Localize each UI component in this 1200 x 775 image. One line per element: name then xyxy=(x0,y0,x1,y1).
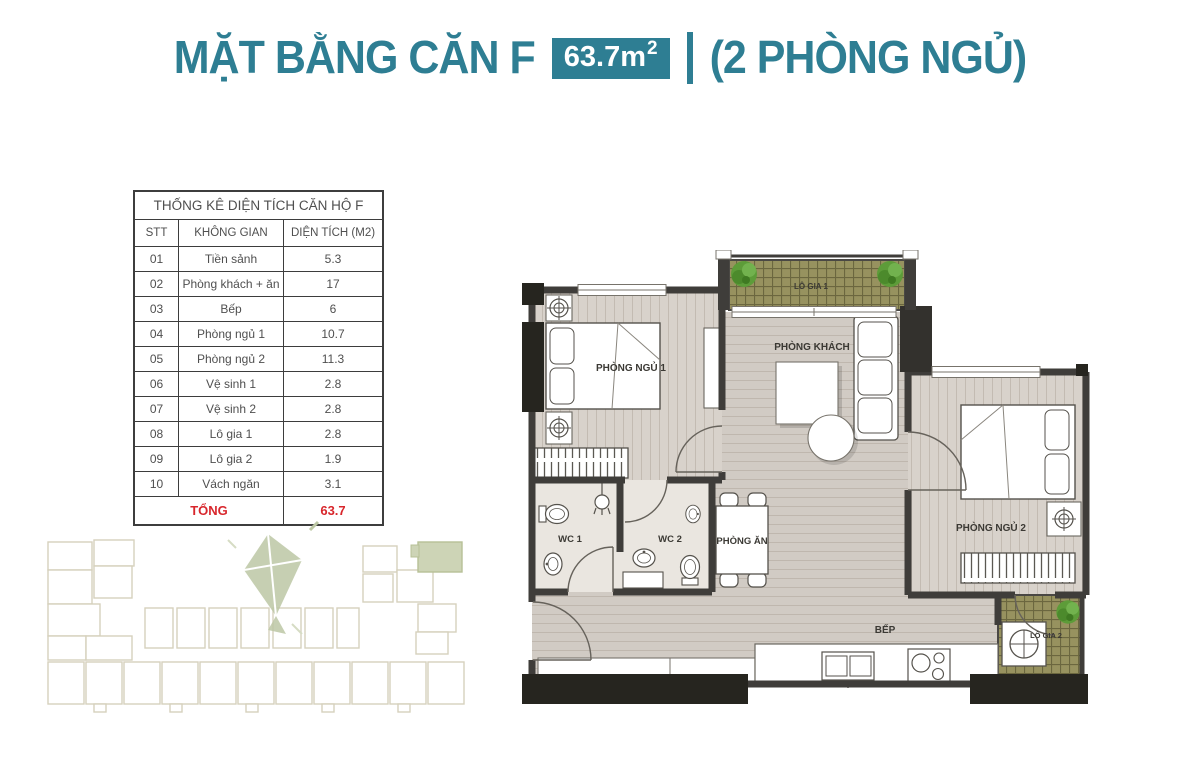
pouf xyxy=(808,415,854,461)
cell-space: Phòng ngủ 2 xyxy=(179,346,284,371)
apartment-floorplan: PHÒNG NGỦ 1 PHÒNG KHÁCH PHÒNG NGỦ 2 WC 1… xyxy=(520,250,1100,710)
page-header: MẶT BẰNG CĂN F 63.7m2 (2 PHÒNG NGỦ) xyxy=(0,32,1200,84)
cell-space: Tiền sảnh xyxy=(179,246,284,271)
cell-area: 2.8 xyxy=(284,421,384,446)
table-row: 03 Bếp 6 xyxy=(134,296,383,321)
cell-area: 2.8 xyxy=(284,396,384,421)
dining-label: PHÒNG ĂN xyxy=(716,535,767,547)
table-title-row: THỐNG KÊ DIỆN TÍCH CĂN HỘ F xyxy=(134,191,383,219)
cell-stt: 03 xyxy=(134,296,179,321)
plant-icon xyxy=(731,261,757,287)
bedroom2-label: PHÒNG NGỦ 2 xyxy=(956,521,1026,534)
cell-area: 2.8 xyxy=(284,371,384,396)
loggia2-label: LÔ GIA 2 xyxy=(1030,631,1062,640)
cell-space: Phòng ngủ 1 xyxy=(179,321,284,346)
cell-stt: 08 xyxy=(134,421,179,446)
cell-stt: 09 xyxy=(134,446,179,471)
col-header-stt: STT xyxy=(134,219,179,246)
cell-space: Phòng khách + ăn xyxy=(179,271,284,296)
table-row: 01 Tiền sảnh 5.3 xyxy=(134,246,383,271)
cell-area: 6 xyxy=(284,296,384,321)
table-header-row: STT KHÔNG GIAN DIỆN TÍCH (M2) xyxy=(134,219,383,246)
page-title: MẶT BẰNG CĂN F xyxy=(174,32,535,85)
area-stats-table: THỐNG KÊ DIỆN TÍCH CĂN HỘ F STT KHÔNG GI… xyxy=(133,190,384,526)
cooktop-icon xyxy=(908,649,950,685)
cell-stt: 04 xyxy=(134,321,179,346)
cell-space: Vệ sinh 2 xyxy=(179,396,284,421)
plant-icon xyxy=(1056,600,1079,623)
cell-area: 1.9 xyxy=(284,446,384,471)
loggia1-label: LÔ GIA 1 xyxy=(794,282,828,291)
area-stats-table-wrap: THỐNG KÊ DIỆN TÍCH CĂN HỘ F STT KHÔNG GI… xyxy=(133,190,384,526)
bedroom1-label: PHÒNG NGỦ 1 xyxy=(596,361,666,374)
wardrobe2 xyxy=(961,553,1075,583)
table-row: 04 Phòng ngủ 1 10.7 xyxy=(134,321,383,346)
floorplan-page: MẶT BẰNG CĂN F 63.7m2 (2 PHÒNG NGỦ) THỐN… xyxy=(0,0,1200,775)
cell-stt: 05 xyxy=(134,346,179,371)
area-value: 63.7m xyxy=(564,43,646,72)
cell-stt: 01 xyxy=(134,246,179,271)
header-divider-bar xyxy=(687,32,693,84)
cell-stt: 07 xyxy=(134,396,179,421)
site-keyplan xyxy=(30,520,500,770)
cell-stt: 06 xyxy=(134,371,179,396)
kitchen-label: BẾP xyxy=(875,623,896,636)
cell-stt: 10 xyxy=(134,471,179,496)
area-badge: 63.7m2 xyxy=(552,38,670,79)
cell-area: 11.3 xyxy=(284,346,384,371)
table-row: 07 Vệ sinh 2 2.8 xyxy=(134,396,383,421)
wc1-label: WC 1 xyxy=(558,534,582,545)
cell-area: 17 xyxy=(284,271,384,296)
wardrobe1 xyxy=(534,448,628,478)
table-row: 10 Vách ngăn 3.1 xyxy=(134,471,383,496)
cell-space: Lô gia 2 xyxy=(179,446,284,471)
bed2 xyxy=(961,405,1075,499)
cell-space: Lô gia 1 xyxy=(179,421,284,446)
table-row: 02 Phòng khách + ăn 17 xyxy=(134,271,383,296)
table-row: 08 Lô gia 1 2.8 xyxy=(134,421,383,446)
cell-space: Bếp xyxy=(179,296,284,321)
table-row: 05 Phòng ngủ 2 11.3 xyxy=(134,346,383,371)
table-row: 06 Vệ sinh 1 2.8 xyxy=(134,371,383,396)
col-header-space: KHÔNG GIAN xyxy=(179,219,284,246)
cell-space: Vách ngăn xyxy=(179,471,284,496)
cell-area: 10.7 xyxy=(284,321,384,346)
area-superscript: 2 xyxy=(647,39,658,58)
wc2-label: WC 2 xyxy=(658,534,682,545)
cell-space: Vệ sinh 1 xyxy=(179,371,284,396)
keyplan-highlighted-unit xyxy=(411,542,462,572)
table-title: THỐNG KÊ DIỆN TÍCH CĂN HỘ F xyxy=(134,191,383,219)
sofa xyxy=(854,316,898,440)
washing-machine-icon xyxy=(1002,622,1046,666)
col-header-area: DIỆN TÍCH (M2) xyxy=(284,219,384,246)
cell-stt: 02 xyxy=(134,271,179,296)
cell-area: 5.3 xyxy=(284,246,384,271)
plant-icon xyxy=(877,261,903,287)
table-row: 09 Lô gia 2 1.9 xyxy=(134,446,383,471)
page-subtitle: (2 PHÒNG NGỦ) xyxy=(710,32,1027,85)
living-room-label: PHÒNG KHÁCH xyxy=(774,340,850,353)
bedroom2-furniture xyxy=(961,405,1081,583)
cell-area: 3.1 xyxy=(284,471,384,496)
